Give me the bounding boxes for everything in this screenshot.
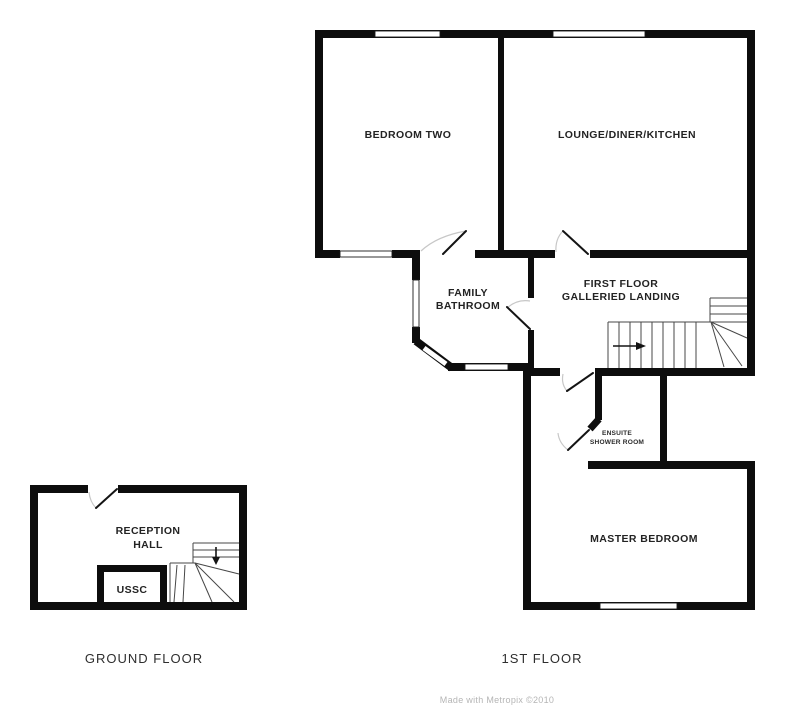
metropix-credit: Made with Metropix ©2010 xyxy=(440,695,554,705)
first-floor-plan: BEDROOM TWO LOUNGE/DINER/KITCHEN FAMILY … xyxy=(315,30,755,666)
door-icon xyxy=(558,430,589,450)
room-label-family-bathroom-line1: FAMILY xyxy=(448,287,488,299)
room-label-master-bedroom: MASTER BEDROOM xyxy=(590,533,698,545)
window-icon xyxy=(600,603,677,609)
first-floor-windows xyxy=(340,31,677,609)
room-label-family-bathroom-line2: BATHROOM xyxy=(436,300,500,312)
door-icon xyxy=(556,231,588,254)
window-icon xyxy=(340,251,392,257)
room-label-reception-hall-line2: HALL xyxy=(133,539,163,551)
window-icon xyxy=(465,364,508,370)
door-icon xyxy=(507,301,530,329)
ground-floor-plan: RECEPTION HALL USSC GROUND FLOOR xyxy=(30,485,247,666)
first-floor-walls xyxy=(315,30,755,610)
ground-floor-caption: GROUND FLOOR xyxy=(85,651,203,666)
window-icon xyxy=(553,31,645,37)
door-icon xyxy=(421,231,466,254)
first-floor-caption: 1ST FLOOR xyxy=(501,651,582,666)
first-floor-doors xyxy=(421,231,593,450)
room-label-galleried-landing-line1: FIRST FLOOR xyxy=(584,278,658,290)
room-label-bedroom-two: BEDROOM TWO xyxy=(365,129,452,141)
room-label-reception-hall-line1: RECEPTION xyxy=(116,525,181,537)
room-label-ussc: USSC xyxy=(117,584,148,596)
floor-plan-page: BEDROOM TWO LOUNGE/DINER/KITCHEN FAMILY … xyxy=(0,0,800,710)
room-label-ensuite-line1: ENSUITE xyxy=(602,430,632,437)
ground-floor-staircase-icon xyxy=(170,543,239,602)
room-label-ensuite-line2: SHOWER ROOM xyxy=(590,439,645,446)
door-icon xyxy=(89,489,117,508)
door-icon xyxy=(563,373,594,391)
window-icon xyxy=(375,31,440,37)
window-icon xyxy=(413,280,419,327)
room-label-lounge-diner-kitchen: LOUNGE/DINER/KITCHEN xyxy=(558,129,696,141)
room-label-galleried-landing-line2: GALLERIED LANDING xyxy=(562,291,680,303)
first-floor-staircase-icon xyxy=(608,298,747,368)
floor-plan-drawing: BEDROOM TWO LOUNGE/DINER/KITCHEN FAMILY … xyxy=(0,0,800,710)
